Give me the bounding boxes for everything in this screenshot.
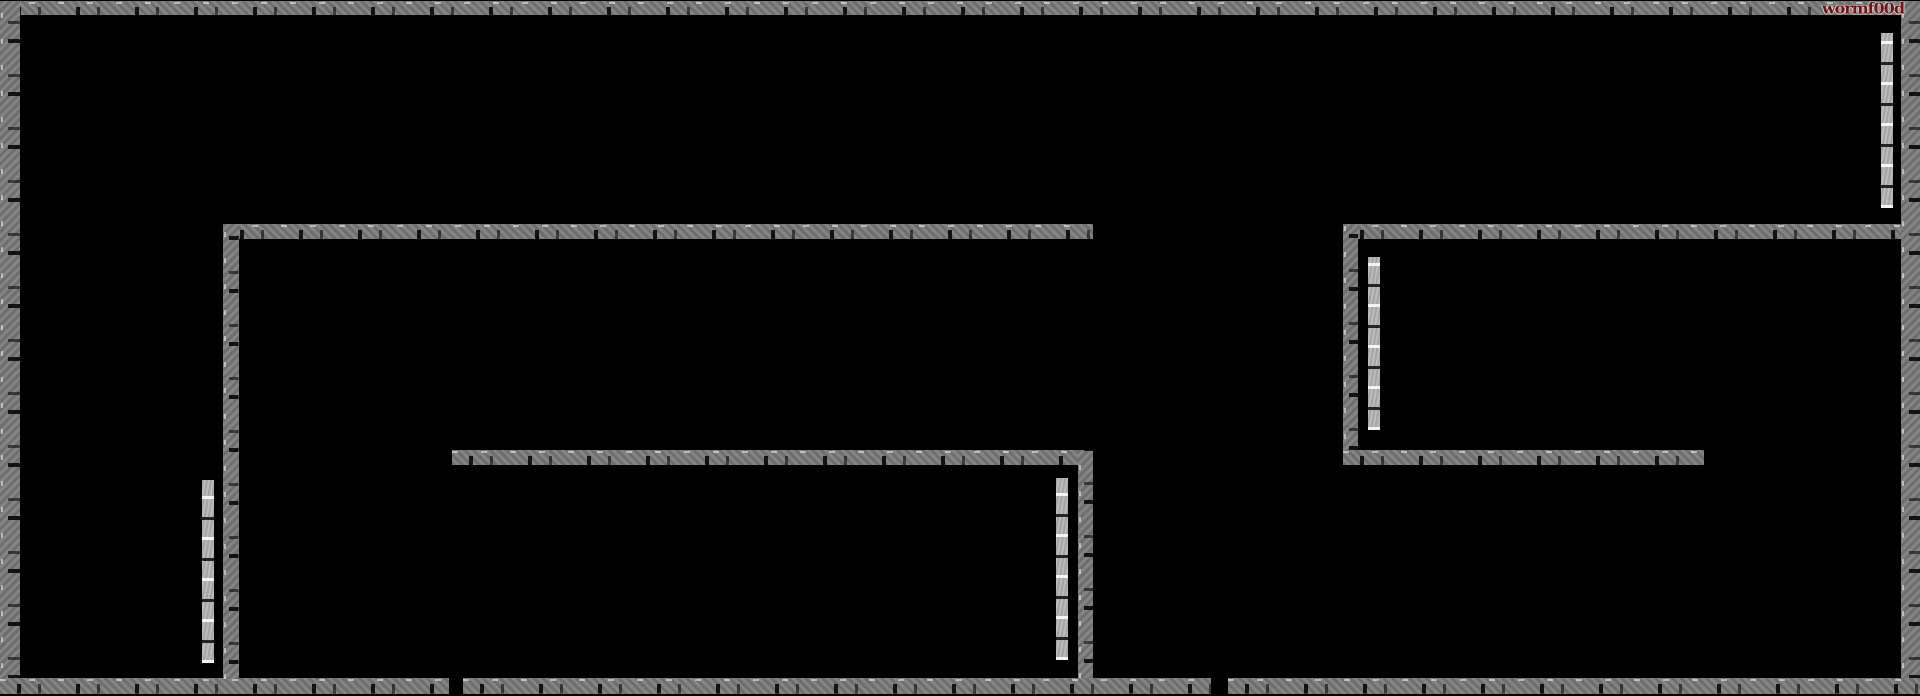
left-room-left-wall (223, 224, 239, 679)
right-room-left-wall (1343, 224, 1358, 465)
bottom-border-wall-middle (463, 678, 1211, 694)
right-border-wall (1901, 1, 1920, 694)
right-room-bottom-wall (1343, 450, 1704, 465)
game-title-watermark: wormf00d (1822, 0, 1904, 16)
playfield[interactable]: wormf00d (0, 0, 1920, 696)
left-room-middle-wall (452, 450, 1093, 465)
left-room-right-wall (1078, 450, 1093, 678)
left-thin-pillar-wall (202, 480, 214, 663)
top-right-thin-pillar-wall (1881, 33, 1893, 208)
right-room-thin-pillar-wall (1368, 257, 1380, 430)
bottom-border-wall-right (1228, 678, 1920, 694)
left-border-wall (0, 1, 20, 694)
middle-thin-pillar-wall (1056, 478, 1068, 660)
right-room-top-wall (1343, 224, 1901, 239)
top-border-wall (0, 1, 1920, 15)
left-room-top-wall (223, 224, 1093, 239)
bottom-border-wall-left (0, 678, 449, 694)
